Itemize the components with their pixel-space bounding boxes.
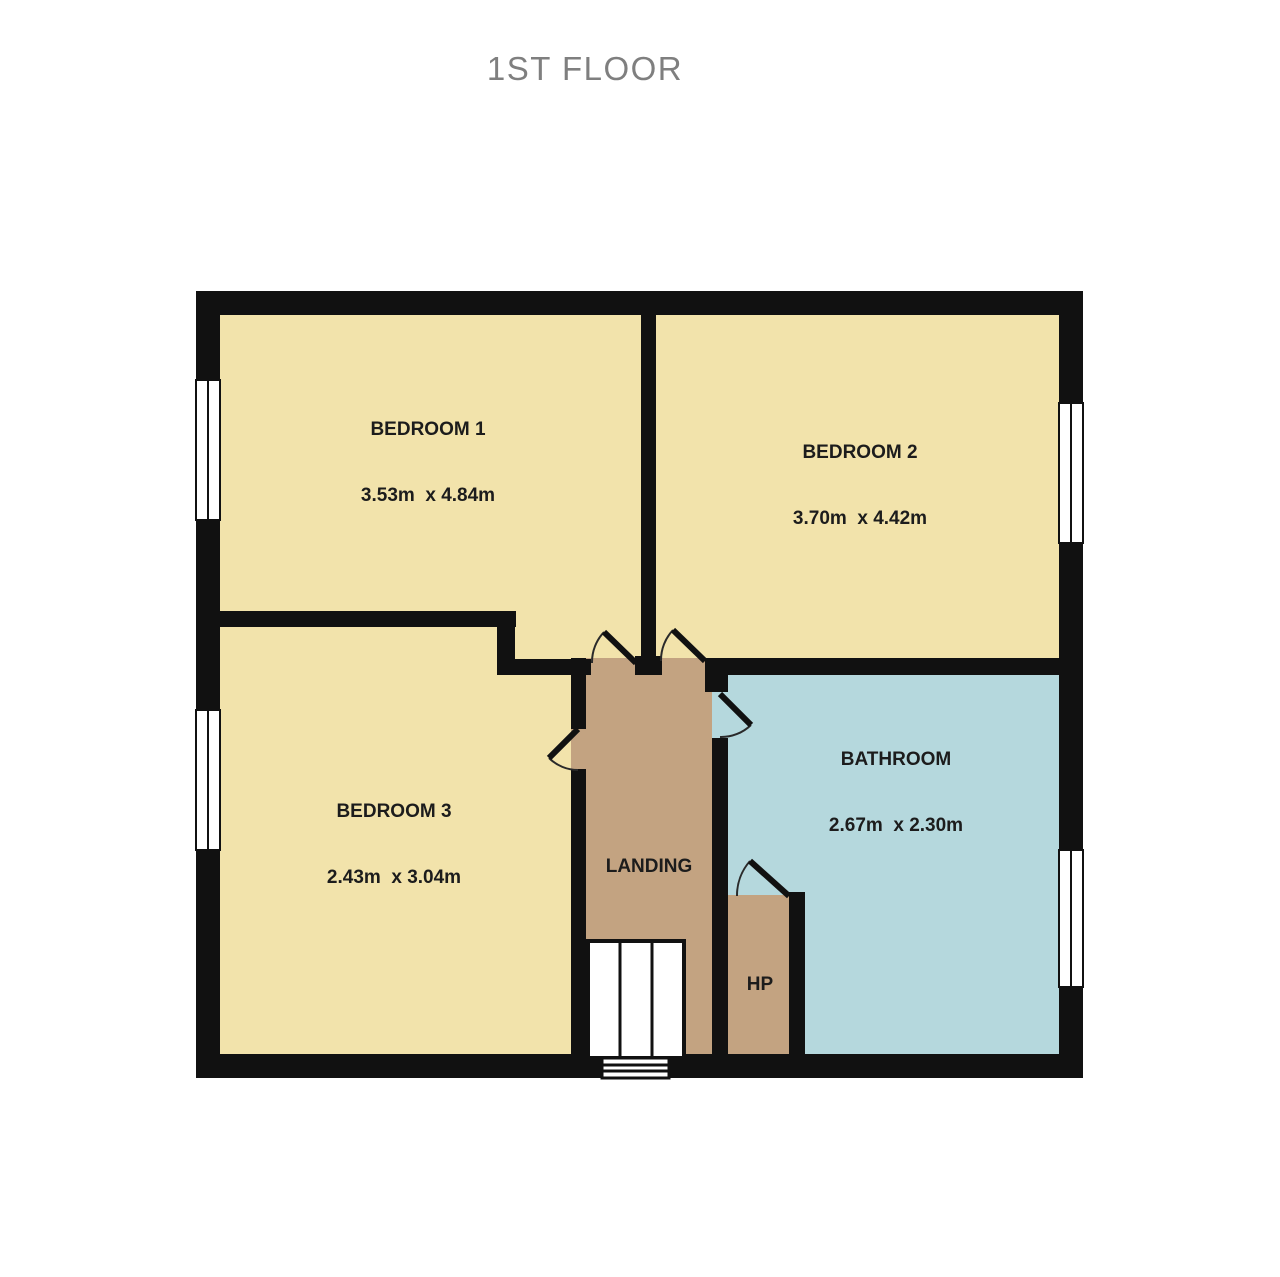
window-icon [1059,850,1083,987]
wall-hp-right [789,892,805,1054]
room-label-bedroom-1: BEDROOM 1 3.53m x 4.84m [361,375,495,551]
wall-bathroom-corner [705,658,728,692]
wall-exterior-top [196,291,1083,315]
room-name: BEDROOM 1 [361,419,495,441]
room-dims: 3.70m x 4.42m [793,508,927,530]
room-name: BATHROOM [829,749,963,771]
room-label-landing: LANDING [606,812,693,922]
room-label-bedroom-2: BEDROOM 2 3.70m x 4.42m [793,398,927,574]
room-label-bedroom-3: BEDROOM 3 2.43m x 3.04m [327,757,461,933]
room-name: LANDING [606,856,693,878]
room-label-hp: HP [747,930,773,1040]
room-name: BEDROOM 3 [327,801,461,823]
wall-bed2-bathroom [705,658,1059,675]
room-dims: 3.53m x 4.84m [361,485,495,507]
window-icon [1059,403,1083,543]
wall-bed3-landing-upper [571,658,586,729]
room-name: HP [747,974,773,996]
room-dims: 2.67m x 2.30m [829,815,963,837]
floorplan-drawing [0,0,1280,1277]
wall-landing-top-nub [635,656,662,675]
wall-bed3-landing-lower [571,769,586,1054]
wall-bed1-bed2 [641,315,656,660]
window-icon [196,710,220,850]
wall-bed1-bed3 [220,611,516,627]
stairs-icon [588,941,684,1078]
wall-landing-bathroom [712,738,728,1054]
window-icon [196,380,220,520]
room-name: BEDROOM 2 [793,442,927,464]
floorplan-canvas: 1ST FLOOR BEDROOM 1 3.53m x 4.84m BEDROO… [0,0,1280,1277]
room-label-bathroom: BATHROOM 2.67m x 2.30m [829,705,963,881]
page-title: 1ST FLOOR [487,50,683,88]
room-dims: 2.43m x 3.04m [327,867,461,889]
